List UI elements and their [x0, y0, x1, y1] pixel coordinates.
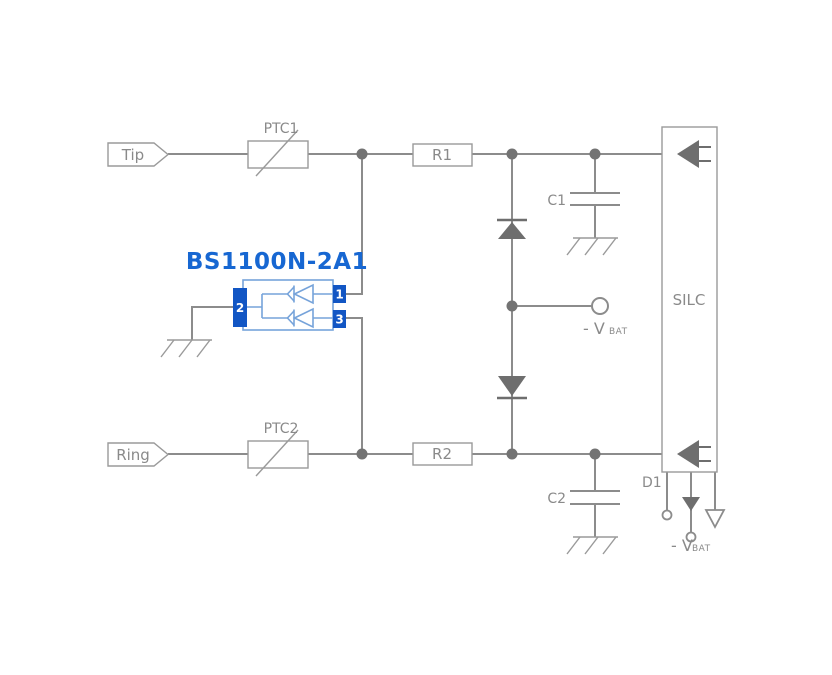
- c2-ground-hatch: [567, 537, 616, 554]
- junction-dot: [590, 449, 601, 460]
- ptc2-fuse: PTC2: [248, 421, 308, 476]
- c2-ground-icon: [567, 537, 618, 554]
- vbat-bottom-label-sub: BAT: [692, 544, 711, 554]
- silc-block: SILC: [662, 127, 717, 472]
- r1-resistor: R1: [413, 144, 472, 166]
- vbat-mid-label: - V: [583, 319, 605, 338]
- protector-component: BS1100N-2A1 2 1 3: [186, 249, 368, 330]
- d1-label: D1: [642, 475, 662, 491]
- r1-label: R1: [432, 146, 452, 164]
- junction-dot: [507, 301, 518, 312]
- junction-dot: [590, 149, 601, 160]
- protector-pin-3: 3: [333, 310, 346, 328]
- circuit-svg: Tip Ring PTC1 PTC2 R1 R2 - V BAT: [0, 0, 832, 675]
- tip-label: Tip: [121, 146, 144, 164]
- ring-label: Ring: [116, 446, 150, 464]
- wire-pin2-to-gnd: [192, 307, 233, 340]
- protector-pin-1: 1: [333, 285, 346, 303]
- tip-terminal: Tip: [108, 143, 168, 166]
- c1-label: C1: [547, 193, 566, 209]
- protector-body: [243, 280, 333, 330]
- pin1-number: 1: [335, 288, 343, 302]
- vbat-down-arrow-icon: [682, 497, 700, 511]
- schematic-canvas: Tip Ring PTC1 PTC2 R1 R2 - V BAT: [0, 0, 832, 675]
- c2-label: C2: [547, 491, 566, 507]
- pin3-number: 3: [335, 313, 343, 327]
- wires: [168, 154, 715, 537]
- pin2-ground-icon: [161, 340, 212, 357]
- d1-terminal-circle: [663, 511, 672, 520]
- protector-pin-2: 2: [233, 288, 247, 327]
- ptc1-body: [248, 141, 308, 168]
- vbat-mid-terminal: - V BAT: [583, 298, 628, 338]
- c2-capacitor: C2: [547, 491, 620, 554]
- junction-dot: [507, 449, 518, 460]
- c1-capacitor: C1: [547, 193, 620, 255]
- chassis-ground-triangle-icon: [706, 510, 724, 527]
- ptc1-fuse: PTC1: [248, 121, 308, 176]
- ring-terminal: Ring: [108, 443, 168, 466]
- c1-ground-hatch: [567, 238, 616, 255]
- ptc2-body: [248, 441, 308, 468]
- pin2-ground-hatch: [161, 340, 210, 357]
- diode-lower: [497, 376, 527, 398]
- vbat-mid-label-sub: BAT: [609, 327, 628, 337]
- silc-label: SILC: [673, 291, 706, 309]
- pin2-number: 2: [236, 301, 244, 315]
- diode-upper: [497, 220, 527, 239]
- junction-dot: [357, 149, 368, 160]
- diode-lower-triangle: [498, 376, 526, 396]
- protector-title: BS1100N-2A1: [186, 249, 368, 275]
- r2-resistor: R2: [413, 443, 472, 465]
- vbat-mid-circle: [592, 298, 608, 314]
- junction-dot: [357, 449, 368, 460]
- ptc1-label: PTC1: [264, 121, 299, 137]
- diode-upper-triangle: [498, 222, 526, 239]
- c1-ground-icon: [567, 238, 618, 255]
- ptc2-label: PTC2: [264, 421, 299, 437]
- vbat-bottom-label: - V: [671, 536, 693, 555]
- r2-label: R2: [432, 445, 452, 463]
- silc-bottom-pins: D1 - V BAT: [642, 475, 724, 555]
- wire-pin3-to-bottom: [346, 318, 362, 454]
- junction-dot: [507, 149, 518, 160]
